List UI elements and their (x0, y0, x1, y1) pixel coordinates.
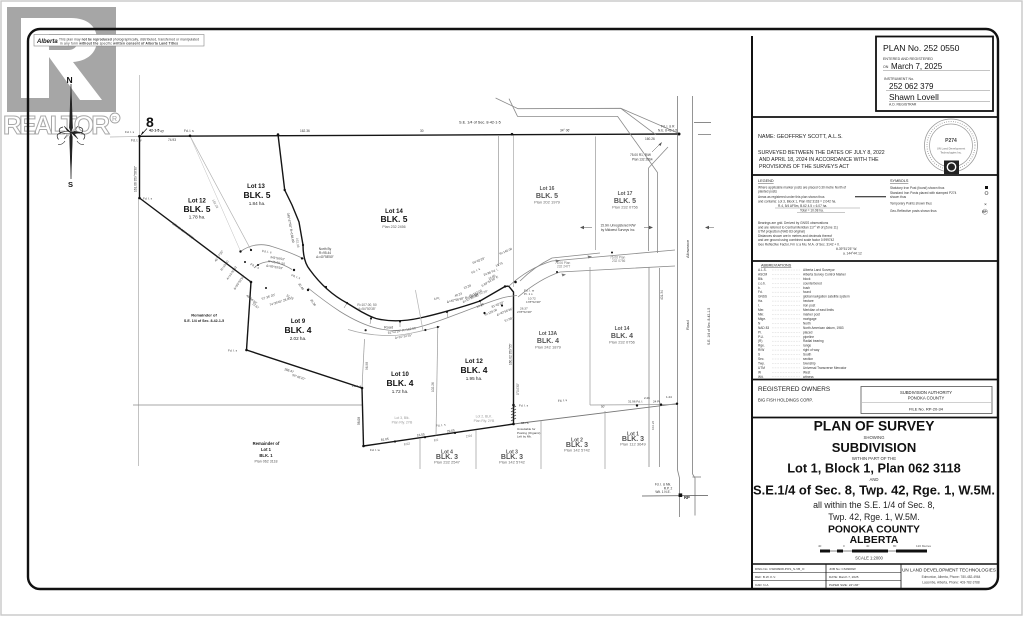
svg-text:Plan Rly. 2YB: Plan Rly. 2YB (392, 421, 413, 425)
svg-text:SUBDIVISION: SUBDIVISION (832, 440, 917, 455)
svg-text:Rge.: Rge. (758, 344, 765, 348)
svg-text:BLK. 1: BLK. 1 (259, 453, 273, 458)
svg-text:Lot 16: Lot 16 (540, 186, 555, 192)
svg-text:ALBERTA: ALBERTA (850, 535, 899, 546)
svg-text:102.26: 102.26 (431, 382, 435, 392)
svg-text:Fd. I. s: Fd. I. s (125, 130, 135, 134)
svg-text:ON: ON (883, 65, 889, 69)
svg-text:Lacombe, Alberta, Phone: 403-7: Lacombe, Alberta, Phone: 403-782-3788 (922, 581, 980, 585)
svg-text:range: range (803, 344, 811, 348)
svg-text:JOB No: CS0909W: JOB No: CS0909W (829, 567, 856, 571)
svg-text:S.E. 1/4 of Sec. 8-42-1-5: S.E. 1/4 of Sec. 8-42-1-5 (707, 308, 711, 345)
svg-text:South: South (803, 353, 812, 357)
svg-text:1.95 ha.: 1.95 ha. (466, 376, 483, 381)
svg-text:GNSS: GNSS (758, 295, 767, 299)
svg-text:Mtge.: Mtge. (758, 317, 766, 321)
svg-text:planted posts: planted posts (758, 190, 777, 194)
svg-text:Remainder of: Remainder of (253, 441, 280, 446)
svg-text:township: township (803, 361, 816, 365)
svg-text:Meridian of east limits: Meridian of east limits (803, 308, 834, 312)
svg-text:Blk.: Blk. (758, 277, 763, 281)
svg-text:global navigation satellite sy: global navigation satellite system (803, 295, 850, 299)
svg-text:Fd. I. s: Fd. I. s (184, 129, 194, 133)
svg-text:Fd. I. w: Fd. I. w (370, 448, 381, 452)
svg-text:placed: placed (803, 330, 813, 334)
svg-text:bush: bush (803, 286, 810, 290)
svg-text:Ha.: Ha. (758, 299, 763, 303)
svg-text:Plan 232 2547: Plan 232 2547 (434, 460, 461, 465)
svg-text:Statutory Iron Post (found) sh: Statutory Iron Post (found) shown thus (890, 186, 945, 190)
svg-text:RP: RP (684, 495, 690, 500)
svg-text:counterbored: counterbored (803, 281, 822, 285)
svg-text:BLK. 5: BLK. 5 (381, 214, 408, 224)
svg-text:Plan 112 3649: Plan 112 3649 (620, 442, 646, 447)
svg-text:Plan 062 3118: Plan 062 3118 (255, 460, 278, 464)
svg-text:West: West (803, 370, 810, 374)
svg-text:Plan Rly. 2YB: Plan Rly. 2YB (474, 419, 495, 423)
svg-text:Fd. I. s: Fd. I. s (228, 349, 238, 353)
svg-text:c.o.b.: c.o.b. (758, 281, 766, 285)
svg-text:Plan 232 0756: Plan 232 0756 (609, 340, 636, 345)
svg-text:Road: Road (685, 320, 690, 330)
svg-text:Δ=40°58'50": Δ=40°58'50" (316, 255, 334, 259)
svg-text:2.26: 2.26 (644, 396, 650, 400)
svg-text:S.E.1/4 of Sec. 8, Twp. 42, Rg: S.E.1/4 of Sec. 8, Twp. 42, Rge. 1, W.5M… (753, 483, 995, 498)
svg-text:80: 80 (893, 544, 897, 548)
svg-text:1.24: 1.24 (666, 395, 672, 399)
svg-text:found: found (803, 290, 811, 294)
svg-text:Geo Reflective Factor, Fm i.r: Geo Reflective Factor, Fm i.r.a Mu. M.A.… (758, 243, 840, 247)
svg-text:74.93: 74.93 (168, 138, 176, 142)
svg-text:PLAN OF SURVEY: PLAN OF SURVEY (814, 419, 935, 434)
svg-text:I.: I. (758, 304, 760, 308)
svg-text:1.84 ha.: 1.84 ha. (249, 201, 266, 206)
svg-text:24 Pt.: 24 Pt. (653, 400, 661, 404)
svg-text:Plan 242 1879: Plan 242 1879 (535, 345, 562, 350)
svg-text:A.L.S.: A.L.S. (758, 268, 767, 272)
svg-text:Total = 10.08 ha.: Total = 10.08 ha. (800, 209, 824, 213)
svg-text:BLK. 4: BLK. 4 (461, 365, 488, 375)
svg-text:Alberta Land Surveyor: Alberta Land Surveyor (803, 268, 836, 272)
svg-text:58.08: 58.08 (357, 417, 361, 425)
svg-text:160.26: 160.26 (645, 137, 655, 141)
svg-text:401.34: 401.34 (660, 290, 664, 300)
svg-text:SURVEYED BETWEEN THE DATES OF: SURVEYED BETWEEN THE DATES OF JULY 8, 20… (758, 150, 885, 156)
svg-text:Pl. 1 s: Pl. 1 s (524, 292, 533, 296)
svg-text:section: section (803, 357, 813, 361)
svg-text:Plan 232 0756: Plan 232 0756 (612, 205, 639, 210)
svg-text:232 0756: 232 0756 (612, 259, 626, 263)
svg-text:PROVISIONS OF THE SURVEYS ACT: PROVISIONS OF THE SURVEYS ACT (759, 164, 850, 170)
svg-text:W: W (758, 370, 761, 374)
svg-text:34° 06': 34° 06' (560, 129, 570, 133)
svg-text:North: North (803, 321, 811, 325)
svg-text:98.76: 98.76 (521, 421, 529, 425)
svg-text:162.36: 162.36 (300, 129, 310, 133)
svg-text:March 7, 2025: March 7, 2025 (891, 62, 943, 71)
svg-text:40: 40 (818, 544, 822, 548)
svg-text:Fd. I. s: Fd. I. s (352, 384, 362, 388)
svg-text:102.26: 102.26 (651, 420, 655, 430)
svg-text:SCALE 1:2000: SCALE 1:2000 (855, 556, 883, 561)
svg-text:right of way: right of way (803, 348, 820, 352)
svg-text:Fd. I. w: Fd. I. w (131, 139, 142, 143)
svg-text:R: R (112, 116, 117, 123)
svg-text:Edmonton, Alberta, Phone: 780-: Edmonton, Alberta, Phone: 780-482-4964 (922, 575, 981, 579)
svg-text:iron post: iron post (803, 304, 815, 308)
svg-text:232 2477: 232 2477 (557, 265, 571, 269)
svg-text:FILE No. RP-20-34: FILE No. RP-20-34 (909, 407, 944, 412)
svg-text:a. 144°44'.12: a. 144°44'.12 (843, 252, 862, 256)
svg-text:Twp.: Twp. (758, 361, 765, 365)
svg-text:REF: B.W. K.V.: REF: B.W. K.V. (755, 575, 776, 579)
svg-text:PLAN No. 252 0550: PLAN No. 252 0550 (883, 43, 960, 53)
svg-text:30: 30 (420, 129, 424, 133)
svg-text:Lot 17: Lot 17 (618, 191, 633, 197)
svg-text:block: block (803, 277, 811, 281)
svg-text:R.4, 5/4 AF5m, B.62 4.5 = 6.0: R.4, 5/4 AF5m, B.62 4.5 = 6.07 ha. (778, 204, 827, 208)
svg-text:Left by Mk.: Left by Mk. (517, 435, 532, 439)
svg-text:all within the S.E. 1/4 of Sec: all within the S.E. 1/4 of Sec. 8, (813, 500, 935, 510)
svg-text:Lot 14: Lot 14 (615, 326, 630, 332)
svg-text:BLK. 4: BLK. 4 (387, 378, 414, 388)
svg-text:REALTOR: REALTOR (3, 110, 110, 140)
svg-text:160.02 359°55': 160.02 359°55' (509, 343, 513, 365)
svg-text:UTM: UTM (758, 366, 765, 370)
svg-text:(R): (R) (758, 339, 762, 343)
svg-text:42-1-5: 42-1-5 (149, 129, 159, 133)
svg-text:AND APRIL 18, 2024 IN ACCORDAN: AND APRIL 18, 2024 IN ACCORDANCE WITH TH… (759, 157, 879, 163)
svg-text:BLK. 5: BLK. 5 (184, 204, 211, 214)
svg-text:Plan 132 2864: Plan 132 2864 (632, 158, 653, 162)
svg-text:178°52'48": 178°52'48" (526, 300, 541, 304)
svg-text:2.02 ha.: 2.02 ha. (290, 336, 307, 341)
svg-text:CAD: N.A: CAD: N.A (755, 583, 769, 587)
svg-text:marker post: marker post (803, 313, 820, 317)
svg-text:NAD 83: NAD 83 (758, 326, 769, 330)
svg-text:PONOKA COUNTY: PONOKA COUNTY (908, 396, 945, 401)
svg-text:40': 40' (160, 130, 165, 134)
svg-text:Fd. I. s: Fd. I. s (519, 404, 529, 408)
svg-text:Δ=54°50'35": Δ=54°50'35" (358, 307, 376, 311)
svg-text:Mer.: Mer. (758, 308, 764, 312)
svg-text:pipeline: pipeline (803, 335, 814, 339)
svg-text:0°04'30": 0°04'30" (516, 383, 520, 395)
svg-text:Plan 232 2456: Plan 232 2456 (382, 225, 405, 229)
svg-text:Fd. I. s: Fd. I. s (143, 197, 153, 201)
svg-text:BLK. 4: BLK. 4 (285, 325, 312, 335)
svg-text:Sec.: Sec. (758, 357, 764, 361)
svg-text:Pl.: Pl. (758, 330, 762, 334)
svg-text:REGISTERED OWNERS: REGISTERED OWNERS (758, 386, 830, 393)
svg-text:Plan 142 5742: Plan 142 5742 (564, 448, 591, 453)
svg-text:1.78 ha.: 1.78 ha. (189, 215, 206, 220)
svg-text:Temporary Points shown thus: Temporary Points shown thus (890, 202, 932, 206)
svg-text:✕: ✕ (984, 203, 987, 207)
svg-text:PONOKA COUNTY: PONOKA COUNTY (828, 525, 920, 536)
svg-text:Allowance: Allowance (685, 239, 690, 258)
svg-text:75.00 R1, R/W: 75.00 R1, R/W (630, 153, 651, 157)
svg-text:Lot 1: Lot 1 (261, 447, 272, 452)
svg-text:ASCM: ASCM (758, 272, 768, 276)
svg-text:Geo-Reflective posts shown thu: Geo-Reflective posts shown thus (890, 209, 937, 213)
svg-text:Lot 13A: Lot 13A (539, 331, 558, 337)
svg-text:P274: P274 (945, 138, 957, 144)
svg-text:SUBDIVISION AUTHORITY: SUBDIVISION AUTHORITY (900, 390, 952, 395)
svg-text:UN LAND DEVELOPMENT TECHNOLOGI: UN LAND DEVELOPMENT TECHNOLOGIES (902, 568, 996, 573)
svg-text:Plan 202 1979: Plan 202 1979 (534, 200, 561, 205)
svg-text:b.: b. (758, 286, 761, 290)
svg-text:hectare: hectare (803, 299, 814, 303)
svg-text:R/W: R/W (758, 348, 764, 352)
svg-text:Universal Transverse Mercator: Universal Transverse Mercator (803, 366, 847, 370)
svg-text:DWG No: CS090908-POS_S-VB_O: DWG No: CS090908-POS_S-VB_O (755, 567, 805, 571)
svg-text:120 Metres: 120 Metres (916, 544, 932, 548)
svg-text:N: N (67, 75, 73, 85)
svg-text:252 062 379: 252 062 379 (889, 82, 934, 91)
svg-text:LEGEND: LEGEND (758, 179, 774, 183)
svg-text:θ-39°51'25" W.: θ-39°51'25" W. (836, 247, 857, 251)
svg-text:Lot 2, BLK.: Lot 2, BLK. (476, 415, 493, 419)
svg-text:Plan 142 5742: Plan 142 5742 (499, 460, 526, 465)
svg-text:278°52'48": 278°52'48" (517, 310, 532, 314)
svg-text:shown thus: shown thus (890, 195, 907, 199)
svg-text:DATE: March 7, 2025: DATE: March 7, 2025 (829, 575, 859, 579)
svg-text:S.E. 1/4 of Sec. 8-42-1-5: S.E. 1/4 of Sec. 8-42-1-5 (184, 319, 224, 323)
svg-text:S: S (68, 180, 73, 189)
svg-text:BLK. 5: BLK. 5 (244, 190, 271, 200)
svg-text:Road: Road (384, 326, 393, 330)
svg-text:Mkr.: Mkr. (758, 313, 764, 317)
svg-text:Lot 3, Blk.: Lot 3, Blk. (394, 416, 409, 420)
svg-text:Remainder of: Remainder of (191, 313, 217, 318)
svg-text:and contains: Lot 3, Block 1,: and contains: Lot 3, Block 1, Plan 062 3… (758, 200, 836, 204)
svg-text:Technologies Inc.: Technologies Inc. (940, 151, 962, 155)
svg-text:PAPER SIZE: 24"x36": PAPER SIZE: 24"x36" (829, 583, 859, 587)
svg-text:Fd.: Fd. (758, 290, 763, 294)
svg-text:SYMBOLS: SYMBOLS (890, 179, 909, 183)
svg-text:North American datum, 1983: North American datum, 1983 (803, 326, 844, 330)
svg-text:Alberta Survey Control Marker: Alberta Survey Control Marker (803, 272, 847, 276)
svg-text:40: 40 (866, 544, 870, 548)
svg-text:Radial bearing: Radial bearing (803, 339, 824, 343)
svg-text:AND: AND (869, 477, 878, 482)
svg-text:8.0: 8.0 (434, 438, 439, 443)
svg-text:Wit. 1 N.E.: Wit. 1 N.E. (655, 490, 670, 494)
svg-text:S.E. 1/4 of Sec. 8-42-1-5: S.E. 1/4 of Sec. 8-42-1-5 (459, 121, 501, 125)
svg-text:witness: witness (803, 375, 814, 379)
svg-text:Twp. 42, Rge. 1, W.5M.: Twp. 42, Rge. 1, W.5M. (828, 512, 919, 522)
svg-text:INSTRUMENT No.: INSTRUMENT No. (884, 77, 914, 81)
svg-text:Wit.: Wit. (758, 375, 764, 379)
svg-text:ENTERED AND REGISTERED: ENTERED AND REGISTERED (883, 57, 933, 61)
svg-text:P.U.: P.U. (758, 335, 764, 339)
svg-text:Alberta: Alberta (36, 39, 58, 45)
svg-text:by Midwest Surveys Inc.: by Midwest Surveys Inc. (601, 228, 635, 232)
svg-text:mortgage: mortgage (803, 317, 817, 321)
svg-text:50': 50' (601, 405, 605, 409)
svg-text:161.06 359°58'30": 161.06 359°58'30" (134, 166, 138, 192)
svg-text:BIG FISH HOLDINGS CORP.: BIG FISH HOLDINGS CORP. (758, 398, 813, 403)
svg-text:A.D. REGISTRAR: A.D. REGISTRAR (889, 103, 917, 107)
svg-text:Shawn Lovell: Shawn Lovell (889, 92, 939, 102)
svg-text:N.E. 8-42-1-5: N.E. 8-42-1-5 (658, 129, 677, 133)
svg-text:Lot 1, Block 1, Plan 062 3118: Lot 1, Block 1, Plan 062 3118 (787, 461, 961, 476)
svg-text:in any form without the specif: in any form without the specific written… (60, 42, 178, 46)
svg-text:ABBREVIATIONS: ABBREVIATIONS (761, 264, 792, 268)
svg-text:96.98: 96.98 (365, 362, 369, 370)
svg-text:S: S (758, 353, 760, 357)
svg-text:1.72 ha.: 1.72 ha. (392, 389, 409, 394)
svg-text:31.96 Fd. I.: 31.96 Fd. I. (628, 400, 643, 404)
svg-text:Areas as registered under this: Areas as registered under this plan show… (758, 195, 825, 199)
svg-text:NAME: GEOFFREY SCOTT, A.L.S.: NAME: GEOFFREY SCOTT, A.L.S. (758, 134, 843, 140)
